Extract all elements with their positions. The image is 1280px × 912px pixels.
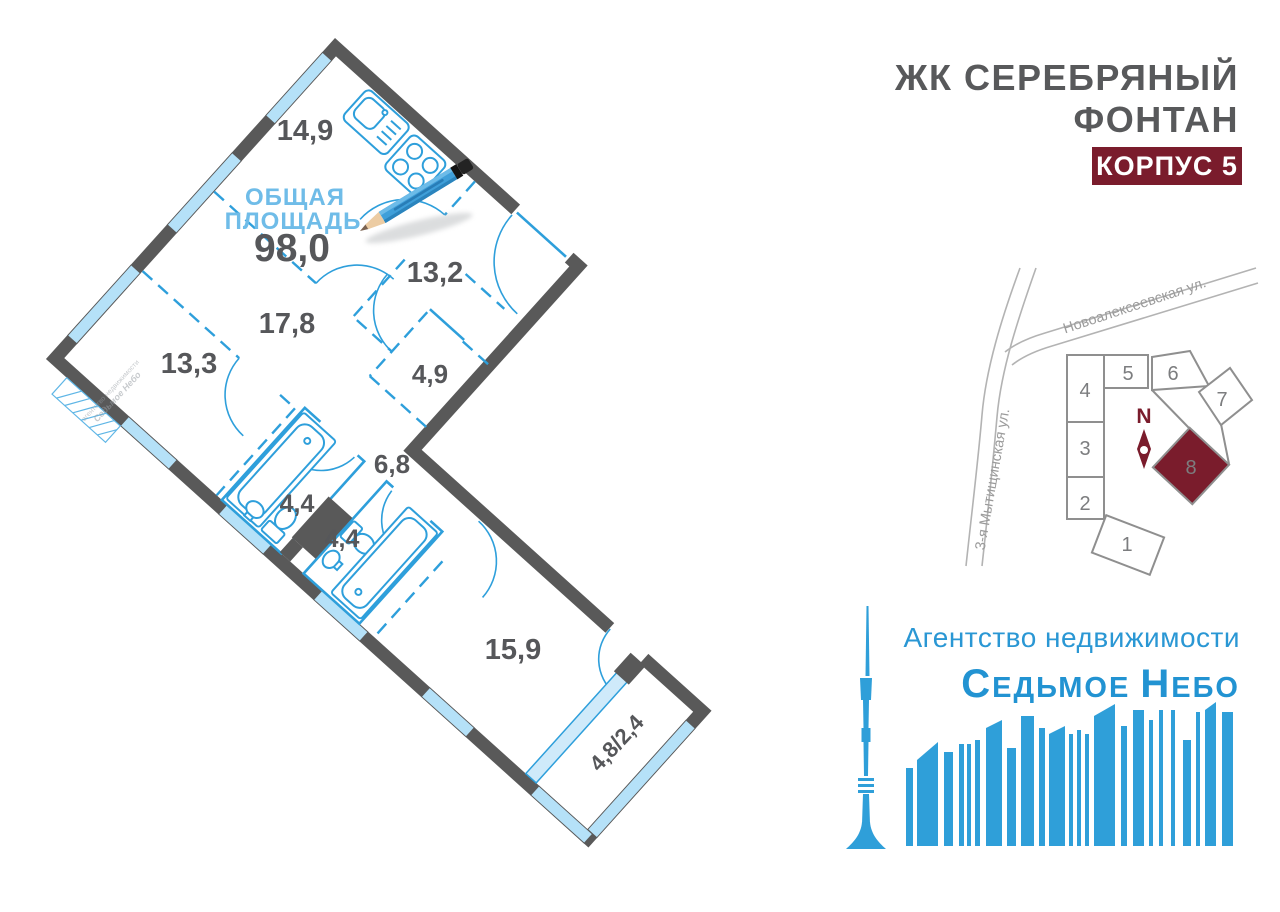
tv-tower-icon <box>846 606 886 849</box>
building-num-2: 2 <box>1079 493 1090 515</box>
site-map: Новоалексеевская ул. 3-я Мытищинская ул.… <box>966 268 1258 575</box>
room-label-17-8: 17,8 <box>259 308 315 340</box>
building-num-3: 3 <box>1079 438 1090 460</box>
room-label-15-9: 15,9 <box>485 634 541 666</box>
street-name-top: Новоалексеевская ул. <box>1061 275 1208 337</box>
room-label-bath1: 4,4 <box>280 490 315 518</box>
skyline-graphic <box>906 702 1233 846</box>
street-name-left: 3-я Мытищинская ул. <box>973 407 1014 551</box>
building-num-7: 7 <box>1216 389 1227 411</box>
agency-logo: Агентство недвижимости СЕДЬМОЕ НЕБО <box>846 606 1240 849</box>
room-label-13-3: 13,3 <box>161 348 217 380</box>
flyer-page: агентство недвижимости Седьмое Небо ОБЩА… <box>0 0 1280 912</box>
room-label-hallway: 13,2 <box>407 257 463 289</box>
site-connector <box>1152 390 1189 428</box>
building-badge-label: КОРПУС 5 <box>1096 151 1238 181</box>
total-area-value: 98,0 <box>254 227 330 270</box>
logo-tagline: Агентство недвижимости <box>904 622 1241 653</box>
building-num-6: 6 <box>1167 363 1178 385</box>
page-title-line1: ЖК СЕРЕБРЯНЫЙ <box>894 56 1239 98</box>
building-num-5: 5 <box>1122 363 1133 385</box>
room-label-kitchen: 14,9 <box>277 115 333 147</box>
floor-plan <box>32 37 879 864</box>
logo-brand: СЕДЬМОЕ НЕБО <box>961 662 1240 706</box>
building-num-4: 4 <box>1079 380 1090 402</box>
compass-n-label: N <box>1136 405 1151 428</box>
compass-north-icon: N <box>1136 405 1151 469</box>
header: ЖК СЕРЕБРЯНЫЙ ФОНТАН КОРПУС 5 <box>894 56 1242 185</box>
page-title-line2: ФОНТАН <box>1074 99 1239 140</box>
room-label-bath2: 4,4 <box>325 525 360 553</box>
flyer-canvas: агентство недвижимости Седьмое Небо ОБЩА… <box>0 0 1280 912</box>
area-caption-line1: ОБЩАЯ <box>245 184 345 211</box>
building-num-8: 8 <box>1185 457 1196 479</box>
building-6-shape <box>1152 351 1209 390</box>
site-buildings <box>1067 351 1252 575</box>
building-num-1: 1 <box>1121 534 1132 556</box>
room-label-wardrobe: 4,9 <box>412 359 448 389</box>
room-label-corridor: 6,8 <box>374 449 410 479</box>
